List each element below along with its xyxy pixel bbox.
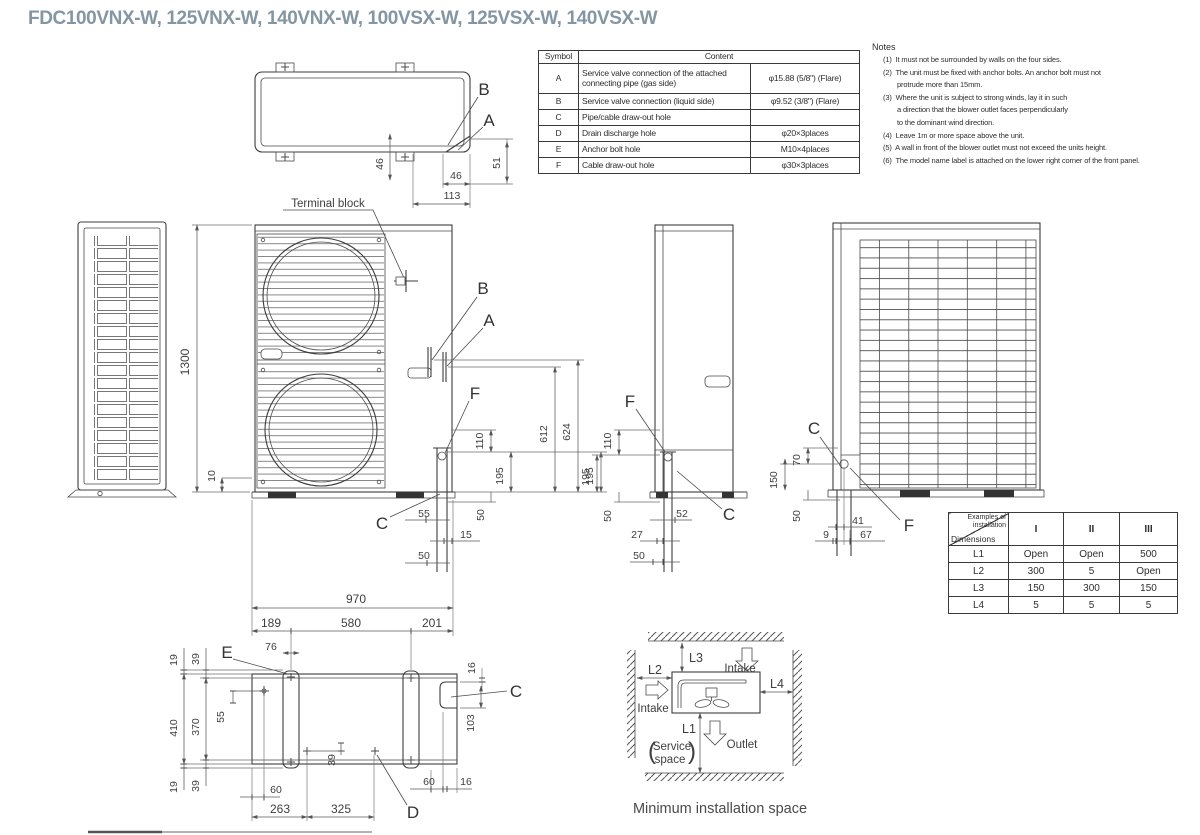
- wall-left: [627, 650, 635, 758]
- dim-46-horizontal: 46: [450, 170, 462, 182]
- min-install-space-diagram: L3 L2 L4 L1 Intake Intake Outlet ( Servi…: [627, 632, 807, 817]
- note-item: (3) Where the unit is subject to strong …: [872, 92, 1197, 130]
- label-f: F: [470, 384, 480, 403]
- coil-symbol: [678, 680, 746, 708]
- col-header-1: I: [1009, 513, 1064, 546]
- dim-263: 263: [270, 802, 290, 816]
- label-e: E: [221, 643, 232, 662]
- dim-113: 113: [444, 190, 461, 202]
- notes: Notes (1) It must not be surrounded by w…: [872, 42, 1197, 167]
- notes-title: Notes: [872, 42, 1197, 52]
- outlet-label: Outlet: [727, 739, 758, 751]
- dim-39-bottom: 39: [190, 780, 202, 792]
- table-row: L3 150 300 150: [949, 580, 1178, 597]
- dim-50-bottom: 50: [418, 550, 430, 562]
- wall-top: [648, 632, 784, 641]
- table-row: E Anchor bolt hole M10×4places: [539, 142, 860, 158]
- label-f: F: [625, 392, 635, 411]
- installation-table: Examples of installation Dimensions I II…: [948, 512, 1178, 614]
- dim-110: 110: [474, 432, 486, 449]
- dim-15: 15: [460, 529, 472, 541]
- col-header-3: III: [1120, 513, 1178, 546]
- fan-louver-lower: [258, 366, 384, 486]
- symbol-table: Symbol Content A Service valve connectio…: [538, 50, 860, 174]
- content-header: Content: [579, 51, 860, 64]
- dim-195: 195: [580, 468, 592, 486]
- dim-150: 150: [768, 471, 780, 489]
- dim-612: 612: [538, 425, 550, 443]
- dim-70: 70: [791, 454, 803, 466]
- page-title: FDC100VNX-W, 125VNX-W, 140VNX-W, 100VSX-…: [28, 8, 657, 30]
- dim-970: 970: [346, 592, 366, 606]
- dim-55: 55: [215, 711, 227, 723]
- note-item: (6) The model name label is attached on …: [872, 155, 1197, 168]
- dim-l3: L3: [689, 651, 703, 665]
- dim-60-right: 60: [423, 776, 435, 788]
- service-valves: [428, 347, 446, 382]
- dim-l2: L2: [648, 663, 662, 677]
- corner-top-label: Examples of installation: [967, 514, 1006, 529]
- dim-1300: 1300: [178, 348, 192, 375]
- fan-louver-upper: [258, 236, 384, 356]
- dim-l4: L4: [770, 677, 784, 691]
- label-c: C: [510, 682, 522, 701]
- service-space-line2: space: [655, 754, 686, 766]
- dim-624: 624: [561, 423, 573, 441]
- table-row: L4 5 5 5: [949, 597, 1178, 614]
- note-item: (1) It must not be surrounded by walls o…: [872, 54, 1197, 67]
- dim-50: 50: [791, 510, 803, 522]
- dim-16-top: 16: [466, 662, 478, 674]
- label-c: C: [376, 514, 388, 533]
- label-f: F: [904, 516, 914, 535]
- fan-symbol: [694, 688, 729, 709]
- dim-16-right: 16: [460, 776, 472, 788]
- label-a: A: [483, 111, 495, 130]
- label-c: C: [808, 419, 820, 438]
- wall-right: [793, 650, 802, 766]
- back-view: C F 70 150 50 41 9 67: [768, 223, 1044, 556]
- corner-bottom-label: Dimensions: [951, 534, 995, 544]
- heat-exchanger-coil: [860, 240, 1036, 488]
- dim-39-top: 39: [190, 653, 202, 665]
- dim-9: 9: [823, 529, 829, 541]
- label-c: C: [723, 505, 735, 524]
- dim-l1: L1: [682, 722, 696, 736]
- dim-52: 52: [676, 508, 688, 520]
- note-item: (5) A wall in front of the blower outlet…: [872, 142, 1197, 155]
- dim-55: 55: [418, 508, 430, 520]
- dim-19-bottom: 19: [168, 781, 180, 793]
- dim-50-bottom: 50: [633, 550, 645, 562]
- note-item: (4) Leave 1m or more space above the uni…: [872, 130, 1197, 143]
- handle: [705, 376, 730, 387]
- side-view: F C 110 195 50 52 27 50: [580, 225, 747, 572]
- label-b: B: [478, 80, 489, 99]
- dim-76: 76: [265, 641, 277, 653]
- dim-110: 110: [602, 432, 614, 449]
- dim-67: 67: [860, 529, 872, 541]
- dim-50-vertical: 50: [475, 509, 487, 521]
- intake-top-label: Intake: [724, 663, 755, 675]
- dim-19-top: 19: [168, 654, 180, 666]
- dim-195: 195: [494, 467, 506, 485]
- dim-41: 41: [852, 515, 864, 527]
- table-row: L1 Open Open 500: [949, 546, 1178, 563]
- min-space-caption: Minimum installation space: [633, 801, 807, 817]
- table-row: A Service valve connection of the attach…: [539, 64, 860, 94]
- col-header-2: II: [1064, 513, 1120, 546]
- terminal-block-label: Terminal block: [291, 198, 365, 210]
- symbol-header: Symbol: [539, 51, 579, 64]
- dim-410: 410: [168, 719, 180, 737]
- dim-370: 370: [190, 718, 202, 736]
- service-space-paren-close: ): [688, 738, 696, 765]
- unit-outline: [672, 672, 760, 713]
- dim-103: 103: [465, 714, 477, 732]
- table-row: B Service valve connection (liquid side)…: [539, 94, 860, 110]
- drawing-sheet: FDC100VNX-W, 125VNX-W, 140VNX-W, 100VSX-…: [0, 0, 1200, 835]
- table-row: D Drain discharge hole φ20×3places: [539, 126, 860, 142]
- dim-46-vertical: 46: [374, 158, 386, 170]
- pipe-bracket: [433, 448, 451, 572]
- dim-189: 189: [261, 616, 281, 630]
- terminal-block-symbol: [394, 270, 418, 292]
- dim-580: 580: [341, 616, 361, 630]
- outlet-arrow: [704, 721, 726, 745]
- intake-left-arrow: [646, 681, 668, 699]
- louver-grille: [94, 236, 158, 481]
- left-side-view: [68, 222, 176, 497]
- bottom-view: 189 580 201 E 76 19 39 410: [168, 614, 522, 822]
- intake-left-label: Intake: [637, 703, 668, 715]
- note-item: (2) The unit must be fixed with anchor b…: [872, 67, 1197, 92]
- label-b: B: [477, 279, 488, 298]
- label-a: A: [483, 311, 495, 330]
- table-row: C Pipe/cable draw-out hole: [539, 110, 860, 126]
- dim-60-left: 60: [270, 784, 282, 796]
- dim-325: 325: [331, 802, 351, 816]
- dim-201: 201: [422, 616, 442, 630]
- table-row: L2 300 5 Open: [949, 563, 1178, 580]
- label-d: D: [407, 803, 419, 822]
- dim-39-drain: 39: [326, 754, 338, 766]
- pipe-bracket: [660, 452, 676, 572]
- dim-10: 10: [206, 470, 218, 482]
- front-view: 1300 10 B A F C 612 624 195 110 195 50 5…: [178, 225, 607, 614]
- dim-27: 27: [631, 529, 643, 541]
- dim-51: 51: [491, 157, 503, 169]
- cable-hole-c: [440, 682, 457, 708]
- table-row: F Cable draw-out hole φ30×3places: [539, 158, 860, 174]
- service-space-line1: Service: [653, 741, 691, 753]
- corner-cell: Examples of installation Dimensions: [949, 513, 1009, 546]
- dim-50-vertical: 50: [602, 510, 614, 522]
- wall-bottom: [645, 773, 784, 781]
